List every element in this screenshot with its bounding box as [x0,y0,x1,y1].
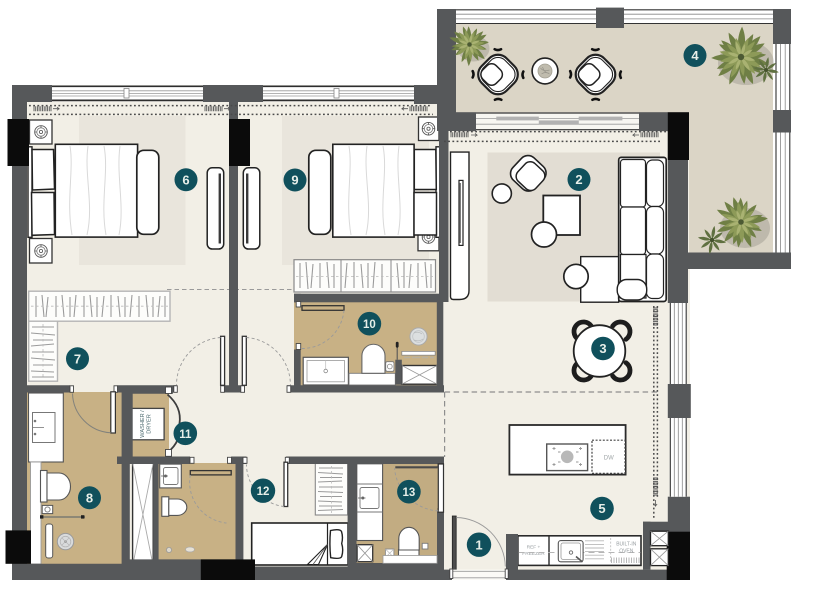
svg-text:1: 1 [475,537,482,552]
svg-text:11: 11 [179,429,192,441]
svg-text:10: 10 [363,319,376,331]
svg-text:OVEN: OVEN [619,549,634,555]
svg-text:2: 2 [575,172,582,187]
svg-text:5: 5 [598,501,605,516]
svg-text:WASHER /: WASHER / [140,410,146,438]
svg-text:13: 13 [403,487,416,499]
svg-text:9: 9 [291,173,298,188]
svg-text:REF +: REF + [527,545,541,551]
svg-text:7: 7 [74,351,81,366]
svg-text:FREEZER: FREEZER [522,551,545,557]
svg-text:8: 8 [86,491,93,506]
svg-text:DRYER: DRYER [147,414,153,433]
svg-text:BUILT-IN: BUILT-IN [616,542,637,548]
svg-text:DW: DW [604,456,614,462]
svg-text:3: 3 [599,341,606,356]
svg-text:4: 4 [691,48,699,63]
svg-text:6: 6 [182,172,189,187]
svg-text:12: 12 [257,486,270,498]
